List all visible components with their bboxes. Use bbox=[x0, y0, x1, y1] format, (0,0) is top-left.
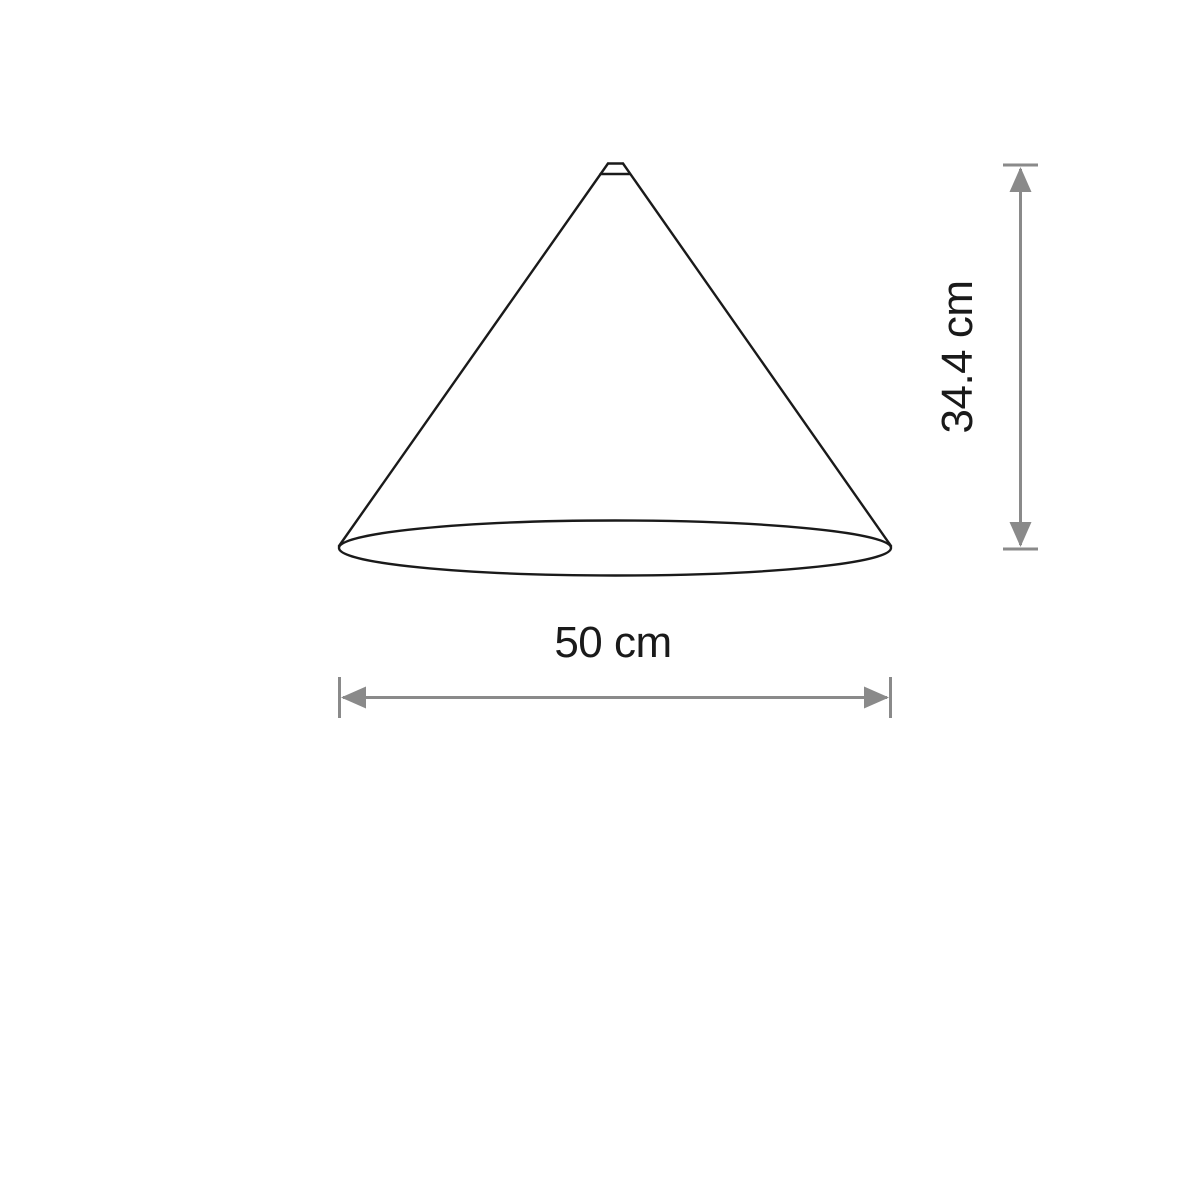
height-dimension: 34.4 cm bbox=[933, 165, 1038, 549]
height-dimension-label: 34.4 cm bbox=[933, 280, 982, 433]
cone-right-side bbox=[623, 164, 891, 547]
width-dim-right-arrow-icon bbox=[864, 687, 889, 709]
width-dim-left-arrow-icon bbox=[341, 687, 366, 709]
width-dimension: 50 cm bbox=[340, 618, 891, 718]
diagram-svg: 34.4 cm 50 cm bbox=[0, 0, 1200, 1200]
cone-base-ellipse bbox=[339, 521, 891, 576]
dimension-diagram: 34.4 cm 50 cm bbox=[0, 0, 1200, 1200]
height-dim-up-arrow-icon bbox=[1010, 167, 1032, 192]
width-dimension-label: 50 cm bbox=[554, 618, 671, 667]
height-dim-down-arrow-icon bbox=[1010, 522, 1032, 547]
cone-left-side bbox=[339, 164, 608, 547]
cone-outline bbox=[339, 164, 891, 576]
